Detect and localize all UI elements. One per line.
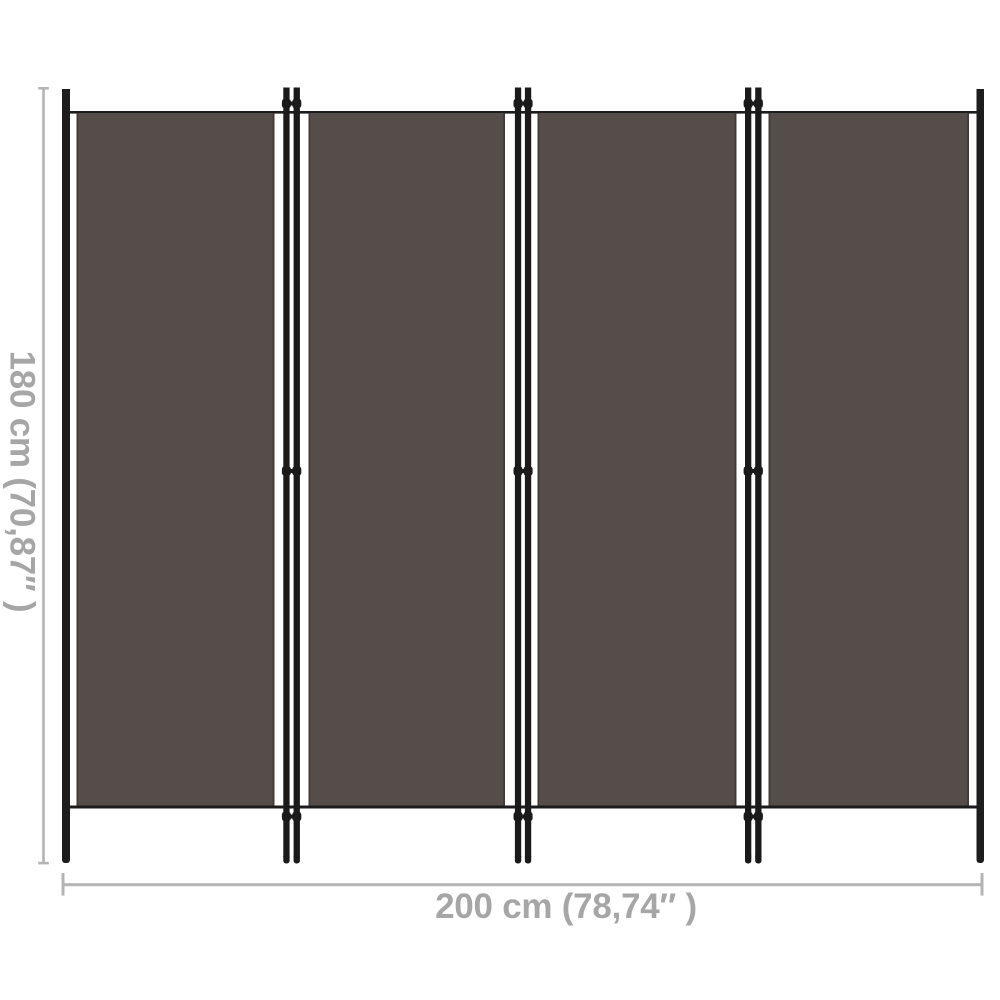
svg-text:180 cm (70,87″ ): 180 cm (70,87″ ) <box>3 351 42 613</box>
svg-text:200 cm (78,74″ ): 200 cm (78,74″ ) <box>435 887 697 926</box>
